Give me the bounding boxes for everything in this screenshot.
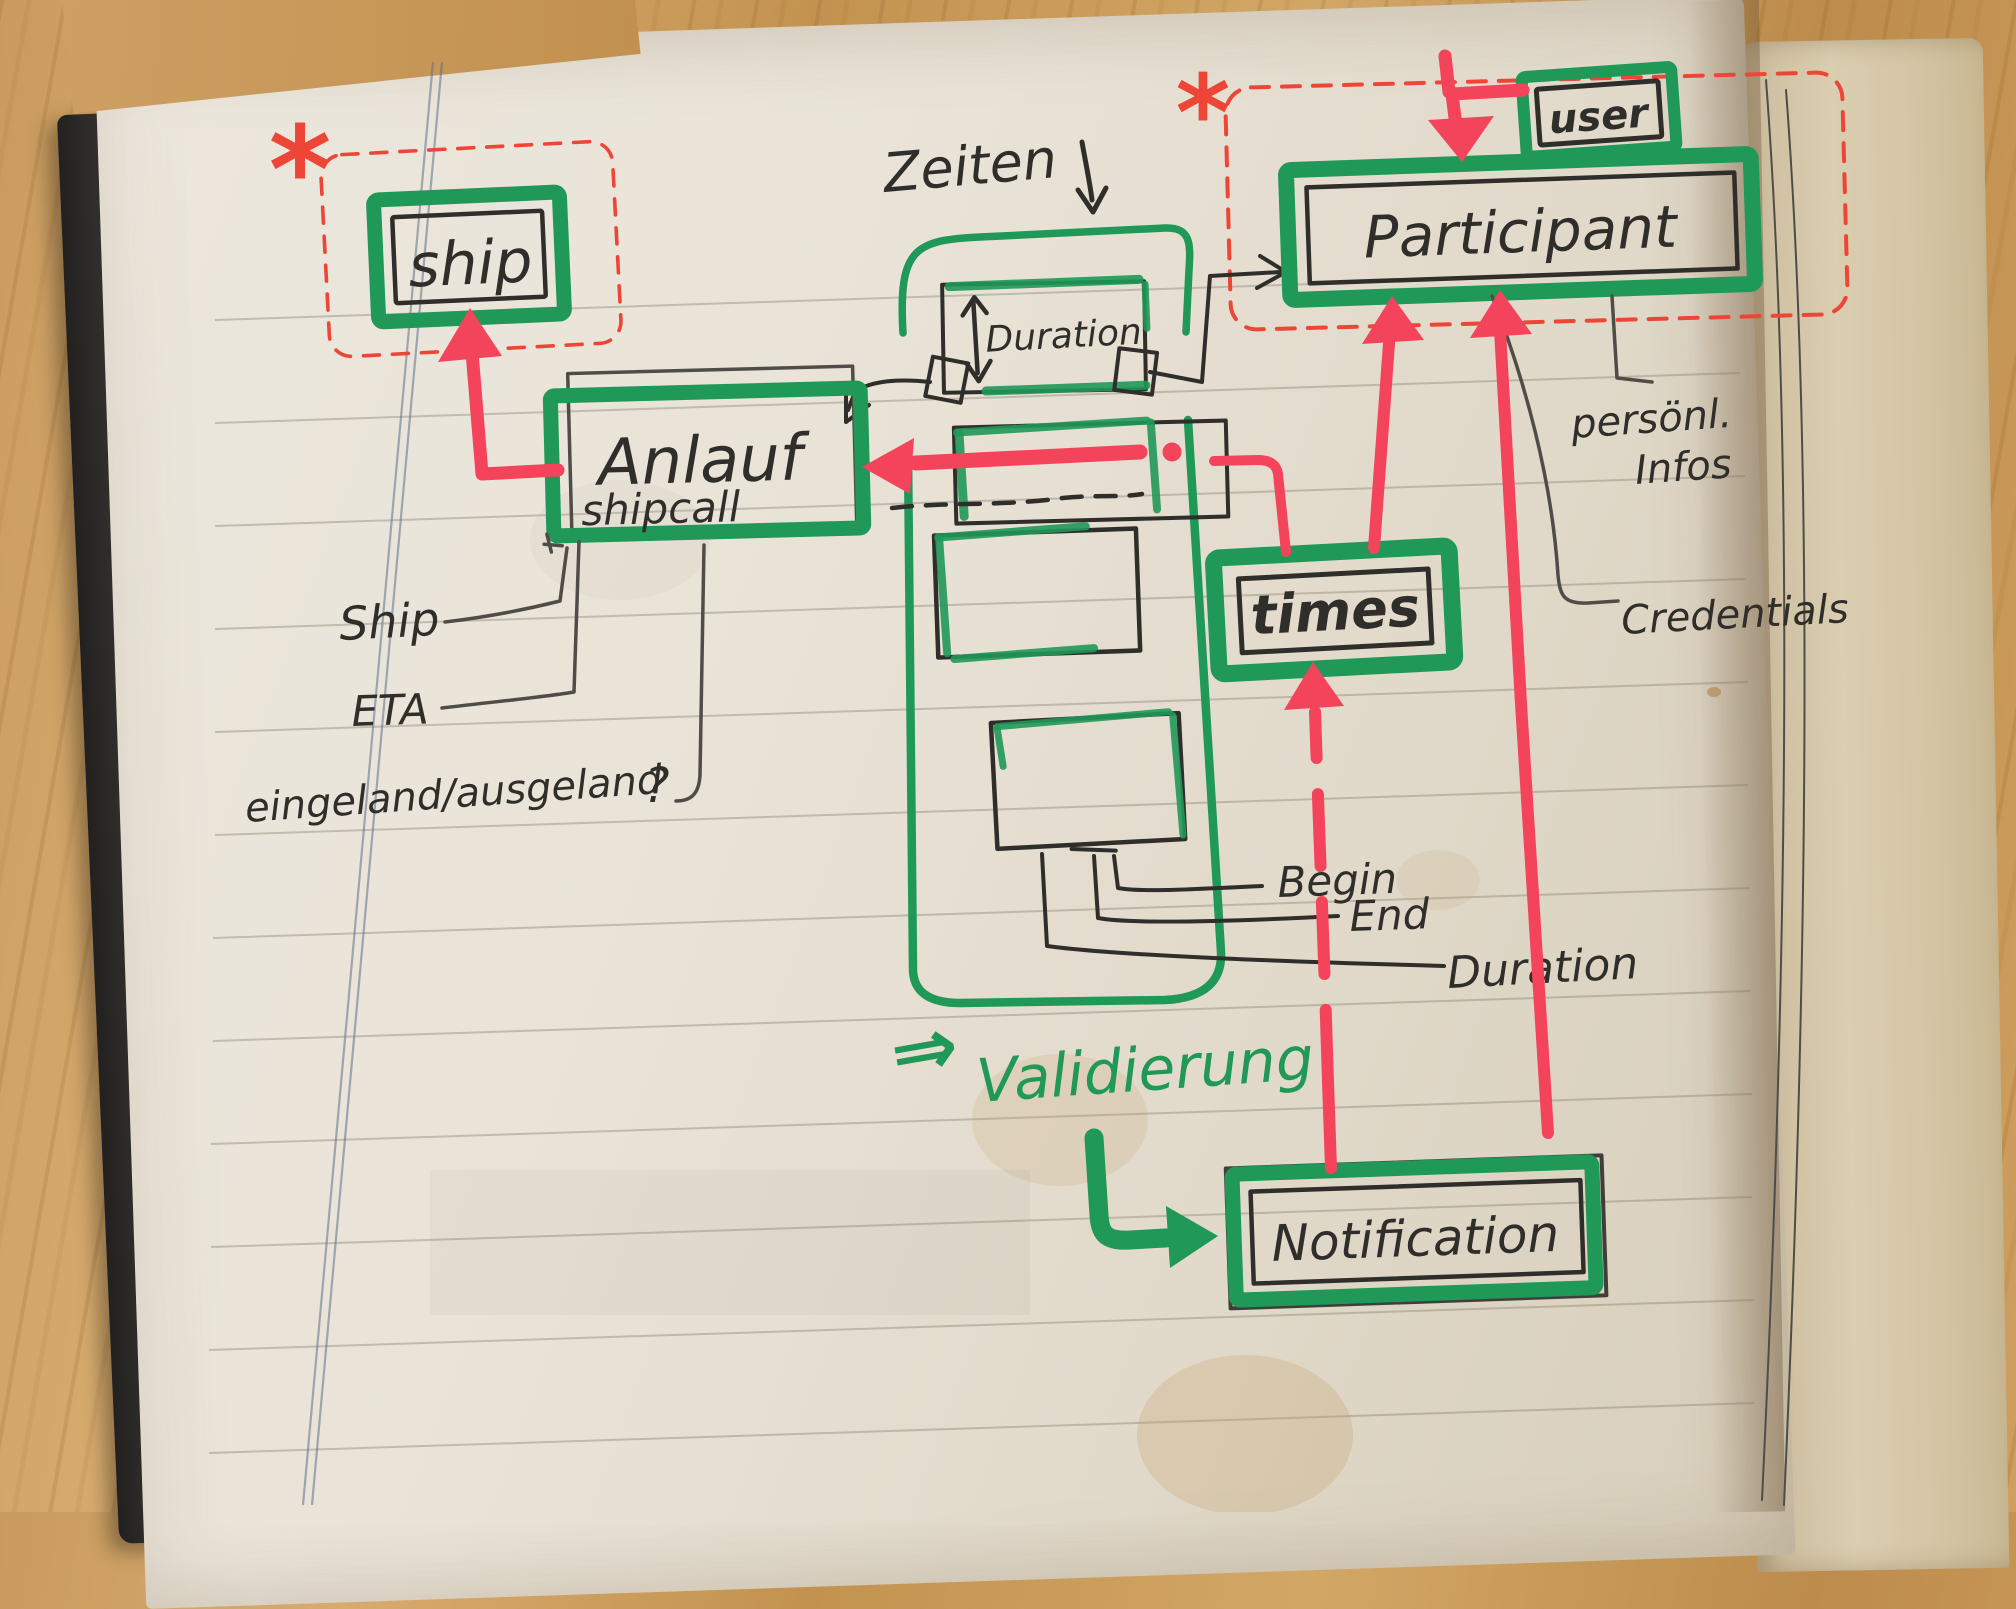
zeiten-down-arrow-icon bbox=[1078, 142, 1106, 212]
anlauf-box-sublabel: shipcall bbox=[581, 482, 742, 535]
participant-box: Participant bbox=[1286, 154, 1755, 300]
ship-box: ship bbox=[373, 192, 564, 322]
time-slot-box-bottom bbox=[991, 711, 1186, 857]
duration-to-participant-connector bbox=[1150, 256, 1286, 382]
times-box: times bbox=[1213, 546, 1455, 674]
eingeland-attribute-label: eingeland/ausgeland bbox=[243, 757, 664, 832]
asterisk-right: * bbox=[1176, 53, 1231, 175]
ship-attribute-label: Ship bbox=[338, 592, 441, 651]
page-stains bbox=[430, 480, 1721, 1512]
end-attribute-label: End bbox=[1349, 889, 1431, 941]
user-to-participant-arrow bbox=[1428, 56, 1523, 162]
times-to-participant-arrow bbox=[1362, 296, 1424, 548]
sketch-dashed-line bbox=[892, 494, 1142, 508]
validierung-annotation: Validierung bbox=[974, 1024, 1316, 1117]
user-box: user bbox=[1521, 67, 1676, 157]
notification-to-participant-arrow bbox=[1470, 290, 1548, 1133]
duration-box: Duration bbox=[923, 279, 1158, 403]
anlauf-to-ship-arrow bbox=[438, 308, 558, 474]
next-page-curl-lines bbox=[1762, 80, 1805, 1505]
user-box-label: user bbox=[1547, 90, 1651, 143]
persoenl-infos-label-line2: Infos bbox=[1633, 441, 1733, 494]
asterisk-left: * bbox=[269, 102, 332, 241]
eta-attribute-label: ETA bbox=[351, 684, 430, 736]
ship-attribute: Ship bbox=[338, 548, 567, 651]
notification-box: Notification bbox=[1226, 1155, 1607, 1308]
eingeland-question-mark: ? bbox=[644, 758, 669, 814]
anlauf-box: Anlauf shipcall bbox=[540, 366, 865, 552]
persoenl-infos-label-line1: persönl. bbox=[1568, 391, 1733, 448]
notification-box-label: Notification bbox=[1271, 1205, 1561, 1273]
persoenl-infos-attribute: persönl. Infos bbox=[1568, 296, 1733, 494]
participant-box-label: Participant bbox=[1363, 192, 1681, 271]
credentials-label: Credentials bbox=[1620, 586, 1850, 644]
zeiten-annotation: Zeiten bbox=[879, 127, 1060, 205]
validierung-arrow-icon: ⇒ bbox=[883, 997, 965, 1100]
time-slot-box-middle bbox=[934, 525, 1140, 660]
hand-drawn-diagram: * * Zeiten Duration sh bbox=[0, 0, 2016, 1512]
ship-box-label: ship bbox=[407, 226, 534, 301]
times-box-label: times bbox=[1249, 576, 1421, 648]
